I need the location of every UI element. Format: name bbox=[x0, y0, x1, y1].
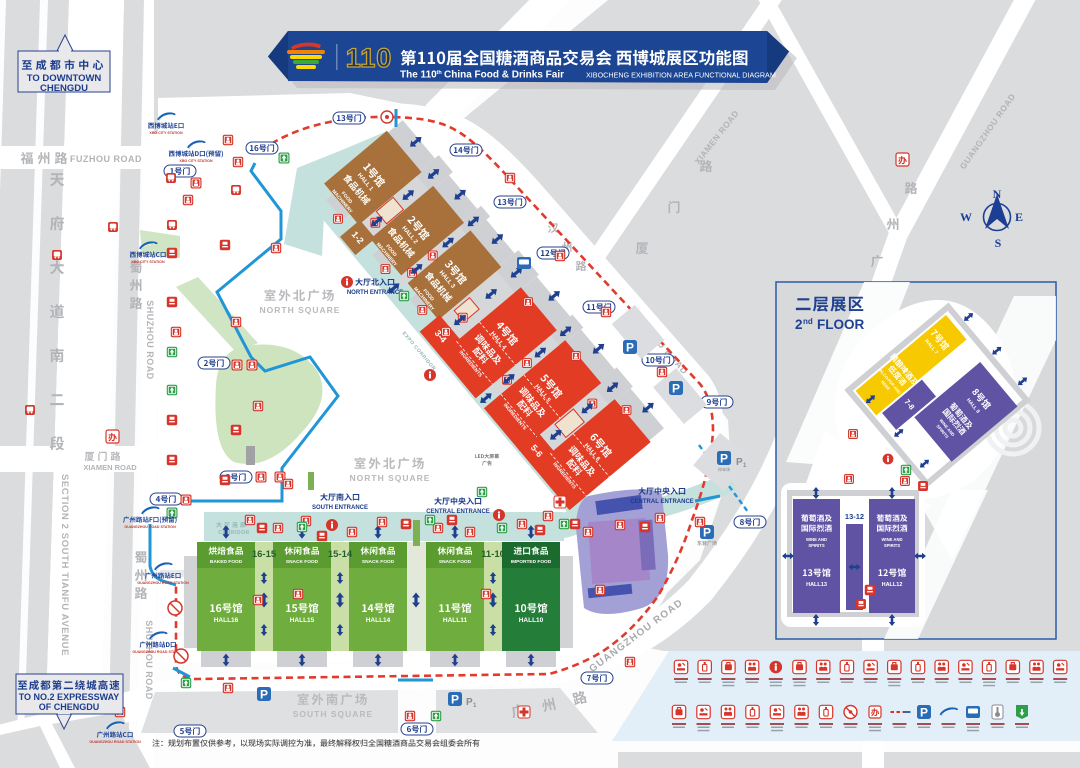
svg-text:N: N bbox=[993, 187, 1002, 201]
svg-text:S: S bbox=[995, 236, 1002, 250]
svg-text:16-15: 16-15 bbox=[252, 549, 277, 560]
svg-text:NORTH SQUARE: NORTH SQUARE bbox=[260, 305, 341, 315]
svg-text:P: P bbox=[736, 457, 743, 468]
svg-text:CHENGDU: CHENGDU bbox=[40, 83, 88, 94]
svg-text:GUANGZHOU ROAD STATION: GUANGZHOU ROAD STATION bbox=[137, 581, 189, 585]
svg-text:P: P bbox=[466, 697, 473, 708]
svg-text:TO NO.2 EXPRESSWAY: TO NO.2 EXPRESSWAY bbox=[19, 692, 120, 702]
svg-text:HALL10: HALL10 bbox=[519, 617, 544, 624]
svg-text:FUZHOU ROAD: FUZHOU ROAD bbox=[70, 154, 142, 164]
svg-text:E: E bbox=[1015, 210, 1023, 224]
svg-text:SHUZHOU ROAD: SHUZHOU ROAD bbox=[145, 300, 155, 380]
svg-text:XBG CITY STATION: XBG CITY STATION bbox=[149, 131, 183, 135]
svg-text:NORTH ENTRANCE: NORTH ENTRANCE bbox=[347, 290, 403, 296]
svg-text:OF CHENGDU: OF CHENGDU bbox=[39, 702, 100, 712]
svg-text:15-14: 15-14 bbox=[328, 549, 353, 560]
svg-text:XBG CITY STATION: XBG CITY STATION bbox=[131, 260, 165, 264]
svg-text:WINE AND: WINE AND bbox=[806, 537, 827, 542]
svg-text:SOUTH SQUARE: SOUTH SQUARE bbox=[293, 709, 373, 719]
svg-text:SNACK FOOD: SNACK FOOD bbox=[439, 559, 472, 565]
svg-text:GUANGZHOU ROAD STATION: GUANGZHOU ROAD STATION bbox=[124, 525, 176, 529]
svg-text:XBG CITY STATION: XBG CITY STATION bbox=[179, 159, 213, 163]
svg-text:110: 110 bbox=[346, 43, 393, 73]
svg-text:CENTRAL ENTRANCE: CENTRAL ENTRANCE bbox=[426, 509, 490, 515]
svg-text:IMPORTED FOOD: IMPORTED FOOD bbox=[511, 559, 552, 565]
svg-text:SECTION 2 SOUTH TIANFU AVENUE: SECTION 2 SOUTH TIANFU AVENUE bbox=[59, 474, 70, 656]
svg-text:SHUZHOU ROAD: SHUZHOU ROAD bbox=[144, 620, 154, 700]
svg-text:2: 2 bbox=[795, 317, 803, 332]
svg-text:HALL12: HALL12 bbox=[882, 582, 903, 588]
svg-text:WINE AND: WINE AND bbox=[881, 537, 902, 542]
svg-text:SOUTH ENTRANCE: SOUTH ENTRANCE bbox=[312, 505, 368, 511]
svg-text:11-10: 11-10 bbox=[481, 549, 505, 560]
svg-text:13-12: 13-12 bbox=[845, 512, 864, 521]
svg-text:SPIRITS: SPIRITS bbox=[884, 543, 900, 548]
svg-text:NORTH SQUARE: NORTH SQUARE bbox=[350, 473, 431, 483]
svg-text:BAKED FOOD: BAKED FOOD bbox=[210, 559, 243, 565]
svg-text:nd: nd bbox=[803, 317, 813, 326]
svg-text:HALL13: HALL13 bbox=[806, 582, 827, 588]
svg-text:The 110: The 110 bbox=[400, 70, 437, 81]
svg-text:SNACK FOOD: SNACK FOOD bbox=[362, 559, 395, 565]
svg-text:China Food & Drinks Fair: China Food & Drinks Fair bbox=[444, 70, 564, 81]
svg-text:th: th bbox=[437, 70, 443, 76]
svg-text:SPIRITS: SPIRITS bbox=[808, 543, 824, 548]
svg-text:FLOOR: FLOOR bbox=[817, 317, 864, 332]
svg-text:CENTRAL ENTRANCE: CENTRAL ENTRANCE bbox=[630, 499, 694, 505]
svg-text:XIBOCHENG EXHIBITION AREA FUNC: XIBOCHENG EXHIBITION AREA FUNCTIONAL DIA… bbox=[586, 71, 776, 80]
svg-text:HALL14: HALL14 bbox=[366, 617, 391, 624]
svg-text:XIAMEN ROAD: XIAMEN ROAD bbox=[83, 463, 137, 472]
svg-text:HALL11: HALL11 bbox=[443, 617, 468, 624]
svg-text:GUANGZHOU ROAD STATION: GUANGZHOU ROAD STATION bbox=[89, 740, 141, 744]
svg-text:HALL15: HALL15 bbox=[290, 617, 315, 624]
svg-text:SNACK FOOD: SNACK FOOD bbox=[286, 559, 319, 565]
svg-text:HALL16: HALL16 bbox=[214, 617, 239, 624]
svg-text:W: W bbox=[960, 210, 972, 224]
svg-text:CORRIDOR: CORRIDOR bbox=[218, 530, 249, 536]
